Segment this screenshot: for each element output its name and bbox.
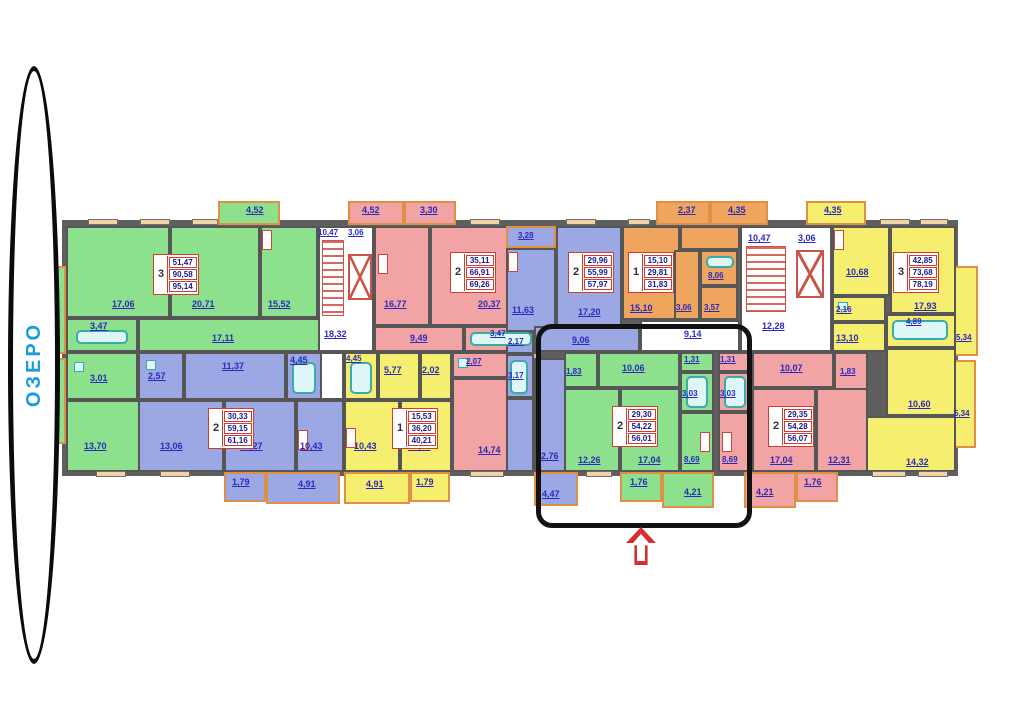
- area-label: 12,28: [762, 322, 785, 331]
- area-label: 1,76: [804, 478, 822, 487]
- room-pink-left-kitchen: [374, 226, 430, 326]
- area-label: 4,89: [906, 318, 922, 326]
- living-area: 42,85: [909, 255, 937, 266]
- full-area: 40,21: [408, 435, 436, 446]
- total-area: 54,28: [784, 421, 812, 432]
- area-label: 14,32: [906, 458, 929, 467]
- area-label: 4,52: [246, 206, 264, 215]
- area-label: 10,43: [300, 442, 323, 451]
- area-label: 2,17: [508, 338, 524, 346]
- area-label: 2,16: [836, 306, 852, 314]
- sink-icon: [146, 360, 156, 370]
- area-label: 4,45: [346, 355, 362, 363]
- window: [918, 471, 948, 477]
- total-area: 29,81: [644, 267, 672, 278]
- stove-icon: [508, 252, 518, 272]
- full-area: 95,14: [169, 281, 197, 292]
- area-label: 10,47: [748, 234, 771, 243]
- full-area: 57,97: [584, 279, 612, 290]
- lake-label: ОЗЕРО: [23, 322, 46, 407]
- area-label: 11,37: [222, 362, 244, 371]
- area-label: 3,06: [348, 229, 364, 237]
- area-label: 8,06: [708, 272, 724, 280]
- area-label: 5,34: [956, 334, 972, 342]
- room-yellow-left-hall: [378, 352, 420, 400]
- area-label: 9,49: [410, 334, 428, 343]
- area-label: 10,43: [354, 442, 377, 451]
- living-area: 35,11: [466, 255, 494, 266]
- area-label: 13,10: [836, 334, 859, 343]
- living-area: 15,53: [408, 411, 436, 422]
- area-label: 3,30: [420, 206, 438, 215]
- total-area: 73,68: [909, 267, 937, 278]
- elevator-left-icon: [348, 254, 372, 300]
- area-label: 3,47: [490, 330, 506, 338]
- area-label: 12,31: [828, 456, 851, 465]
- lake-ellipse: ОЗЕРО: [8, 66, 60, 664]
- area-label: 17,93: [914, 302, 937, 311]
- window: [140, 219, 170, 225]
- apartment-summary-blue-mid: 2 29,96 55,99 57,97: [568, 252, 614, 293]
- area-label: 11,63: [512, 306, 534, 315]
- area-label: 10,68: [846, 268, 869, 277]
- sink-icon: [74, 362, 84, 372]
- window: [160, 471, 190, 477]
- window: [566, 219, 596, 225]
- area-label: 10,47: [318, 229, 338, 237]
- area-label: 3,06: [798, 234, 816, 243]
- window: [872, 471, 906, 477]
- room-count: 3: [895, 254, 908, 291]
- area-label: 17,11: [212, 334, 234, 343]
- living-area: 51,47: [169, 257, 197, 268]
- area-label: 15,10: [630, 304, 653, 313]
- area-label: 10,07: [780, 364, 803, 373]
- area-label: 3,06: [676, 304, 692, 312]
- area-label: 17,06: [112, 300, 135, 309]
- area-label: 20,71: [192, 300, 215, 309]
- room-count: 2: [452, 254, 465, 291]
- total-area: 36,20: [408, 423, 436, 434]
- area-label: 20,37: [478, 300, 501, 309]
- room-blue-left-hall: [184, 352, 286, 400]
- total-area: 90,58: [169, 269, 197, 280]
- apartment-summary-orange: 1 15,10 29,81 31,83: [628, 252, 674, 293]
- area-label: 3,28: [518, 232, 534, 240]
- area-label: 3,47: [90, 322, 108, 331]
- floor-plan-canvas: ОЗЕРО: [0, 0, 1024, 724]
- living-area: 30,33: [224, 411, 252, 422]
- area-label: 16,77: [384, 300, 407, 309]
- bathtub-icon: [706, 256, 734, 268]
- room-blue-mid-storage: [506, 398, 534, 472]
- room-count: 1: [394, 410, 407, 447]
- stairs-right-icon: [746, 246, 786, 312]
- room-orange-entry-strip: [680, 226, 740, 250]
- apartment-summary-yellow-left: 1 15,53 36,20 40,21: [392, 408, 438, 449]
- window: [192, 219, 218, 225]
- window: [470, 219, 500, 225]
- apartment-summary-blue-left: 2 30,33 59,15 61,16: [208, 408, 254, 449]
- window: [880, 219, 910, 225]
- balcony-yellow-right-upper: [954, 266, 978, 356]
- bathtub-icon: [350, 362, 372, 394]
- full-area: 69,26: [466, 279, 494, 290]
- window: [470, 471, 504, 477]
- room-count: 2: [570, 254, 583, 291]
- area-label: 4,21: [756, 488, 774, 497]
- area-label: 17,04: [770, 456, 793, 465]
- area-label: 13,06: [160, 442, 183, 451]
- selected-apartment-highlight: [536, 324, 752, 528]
- window: [88, 219, 118, 225]
- apartment-summary-pink-right: 2 29,35 54,28 56,07: [768, 406, 814, 447]
- area-label: 1,79: [232, 478, 250, 487]
- room-count: 1: [630, 254, 643, 291]
- area-label: 2,02: [422, 366, 440, 375]
- area-label: 4,91: [366, 480, 384, 489]
- area-label: 2,57: [148, 372, 166, 381]
- window: [628, 219, 650, 225]
- room-count: 2: [210, 410, 223, 447]
- area-label: 15,52: [268, 300, 291, 309]
- room-green-left-bedroom2: [66, 400, 140, 472]
- bathtub-icon: [76, 330, 128, 344]
- area-label: 5,77: [384, 366, 402, 375]
- bathtub-icon: [292, 362, 316, 394]
- area-label: 3,17: [508, 372, 524, 380]
- area-label: 1,79: [416, 478, 434, 487]
- living-area: 15,10: [644, 255, 672, 266]
- room-count: 3: [155, 256, 168, 293]
- stairwell-left-lobby: [320, 352, 344, 400]
- apartment-summary-green-left: 3 51,47 90,58 95,14: [153, 254, 199, 295]
- stove-icon: [378, 254, 388, 274]
- stove-icon: [834, 230, 844, 250]
- area-label: 4,35: [824, 206, 842, 215]
- stove-icon: [262, 230, 272, 250]
- area-label: 14,74: [478, 446, 501, 455]
- area-label: 4,91: [298, 480, 316, 489]
- apartment-summary-pink-left: 2 35,11 66,91 69,26: [450, 252, 496, 293]
- elevator-right-icon: [796, 250, 824, 298]
- total-area: 66,91: [466, 267, 494, 278]
- area-label: 2,37: [678, 206, 696, 215]
- area-label: 5,34: [954, 410, 970, 418]
- area-label: 13,70: [84, 442, 107, 451]
- stairs-left-icon: [322, 240, 344, 316]
- living-area: 29,35: [784, 409, 812, 420]
- area-label: 17,20: [578, 308, 601, 317]
- full-area: 31,83: [644, 279, 672, 290]
- area-label: 4,45: [290, 356, 308, 365]
- total-area: 55,99: [584, 267, 612, 278]
- area-label: 18,32: [324, 330, 347, 339]
- full-area: 78,19: [909, 279, 937, 290]
- total-area: 59,15: [224, 423, 252, 434]
- area-label: 1,83: [840, 368, 856, 376]
- area-label: 3,57: [704, 304, 720, 312]
- area-label: 3,01: [90, 374, 108, 383]
- area-label: 4,35: [728, 206, 746, 215]
- apartment-summary-yellow-right: 3 42,85 73,68 78,19: [893, 252, 939, 293]
- room-count: 2: [770, 408, 783, 445]
- full-area: 56,07: [784, 433, 812, 444]
- full-area: 61,16: [224, 435, 252, 446]
- living-area: 29,96: [584, 255, 612, 266]
- room-yellow-left-wardrobe: [420, 352, 452, 400]
- area-label: 4,52: [362, 206, 380, 215]
- area-label: 10,60: [908, 400, 931, 409]
- window: [96, 471, 126, 477]
- area-label: 2,07: [466, 358, 482, 366]
- window: [920, 219, 948, 225]
